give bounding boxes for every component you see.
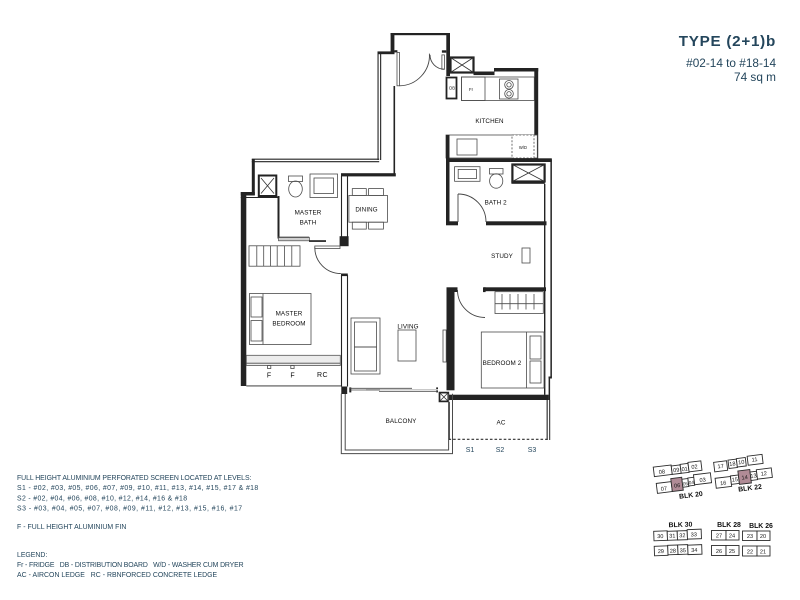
svg-text:23: 23 xyxy=(747,534,753,540)
svg-text:25: 25 xyxy=(729,549,735,555)
svg-text:W/D: W/D xyxy=(519,145,527,150)
svg-text:S3: S3 xyxy=(528,447,537,454)
svg-text:FULL HEIGHT ALUMINIUM PERFORAT: FULL HEIGHT ALUMINIUM PERFORATED SCREEN … xyxy=(17,475,252,482)
svg-text:F - FULL HEIGHT ALUMINIUM FIN: F - FULL HEIGHT ALUMINIUM FIN xyxy=(17,524,126,531)
svg-text:BEDROOM 2: BEDROOM 2 xyxy=(483,360,522,367)
svg-text:S1: S1 xyxy=(466,447,475,454)
svg-text:F: F xyxy=(267,373,271,380)
svg-text:S3 - #03, #04, #05, #07, #08,: S3 - #03, #04, #05, #07, #08, #09, #11, … xyxy=(17,506,243,513)
svg-text:LIVING: LIVING xyxy=(397,324,418,331)
svg-text:BALCONY: BALCONY xyxy=(386,418,417,425)
svg-text:06: 06 xyxy=(674,483,681,490)
svg-text:34: 34 xyxy=(691,548,697,554)
svg-text:LEGEND:: LEGEND: xyxy=(17,552,47,559)
svg-text:10: 10 xyxy=(738,460,745,467)
svg-text:29: 29 xyxy=(658,549,664,555)
svg-text:S2 - #02, #04, #06, #08, #10,: S2 - #02, #04, #06, #08, #10, #12, #14, … xyxy=(17,495,187,502)
svg-text:27: 27 xyxy=(716,534,722,540)
svg-text:F: F xyxy=(290,373,294,380)
svg-text:30: 30 xyxy=(657,534,663,540)
svg-text:24: 24 xyxy=(729,534,735,540)
svg-text:21: 21 xyxy=(760,550,766,556)
svg-text:09: 09 xyxy=(673,468,680,475)
svg-text:BATH 2: BATH 2 xyxy=(485,200,508,207)
svg-text:14: 14 xyxy=(741,475,748,482)
svg-text:MASTER: MASTER xyxy=(276,311,303,318)
svg-text:DB: DB xyxy=(449,86,455,91)
svg-text:32: 32 xyxy=(679,533,685,539)
svg-text:BATH: BATH xyxy=(300,220,317,227)
svg-text:BEDROOM: BEDROOM xyxy=(272,321,305,328)
svg-text:74 sq m: 74 sq m xyxy=(734,70,776,84)
svg-text:02: 02 xyxy=(691,464,698,471)
svg-text:STUDY: STUDY xyxy=(491,253,514,260)
svg-text:#02-14 to #18-14: #02-14 to #18-14 xyxy=(686,56,776,70)
svg-text:S2: S2 xyxy=(496,447,505,454)
svg-text:08: 08 xyxy=(659,469,666,476)
svg-text:15: 15 xyxy=(732,477,739,484)
svg-text:BLK 26: BLK 26 xyxy=(749,523,773,530)
svg-text:BLK 30: BLK 30 xyxy=(669,521,693,529)
svg-text:S1 - #02, #03, #05, #06, #07,: S1 - #02, #03, #05, #06, #07, #09, #10, … xyxy=(17,485,259,492)
svg-text:AC: AC xyxy=(497,420,506,427)
svg-text:28: 28 xyxy=(670,549,676,555)
svg-text:MASTER: MASTER xyxy=(295,210,322,217)
svg-text:AC - AIRCON LEDGE RC - RBNFO: AC - AIRCON LEDGE RC - RBNFORCED CONCRET… xyxy=(17,572,218,579)
svg-text:KITCHEN: KITCHEN xyxy=(475,118,504,125)
svg-text:Fr: Fr xyxy=(469,87,474,92)
svg-text:31: 31 xyxy=(669,534,675,540)
svg-text:03: 03 xyxy=(699,477,706,484)
svg-text:20: 20 xyxy=(760,534,766,540)
svg-text:22: 22 xyxy=(747,550,753,556)
svg-text:07: 07 xyxy=(661,486,668,493)
svg-text:DINING: DINING xyxy=(355,207,377,214)
svg-text:35: 35 xyxy=(680,548,686,554)
svg-text:Fr - FRIDGE DB - DISTRIBUTIO: Fr - FRIDGE DB - DISTRIBUTION BOARD W/D … xyxy=(17,562,244,569)
svg-text:33: 33 xyxy=(691,532,697,538)
svg-text:BLK 28: BLK 28 xyxy=(717,522,741,529)
svg-text:18: 18 xyxy=(729,461,736,468)
svg-text:13: 13 xyxy=(750,473,757,480)
svg-text:26: 26 xyxy=(716,549,722,555)
svg-text:11: 11 xyxy=(751,457,758,464)
svg-text:TYPE (2+1)b: TYPE (2+1)b xyxy=(679,33,776,50)
svg-text:01: 01 xyxy=(681,466,688,473)
svg-text:RC: RC xyxy=(317,372,328,379)
svg-text:16: 16 xyxy=(720,481,727,488)
svg-text:17: 17 xyxy=(717,464,724,471)
svg-text:12: 12 xyxy=(760,471,767,478)
